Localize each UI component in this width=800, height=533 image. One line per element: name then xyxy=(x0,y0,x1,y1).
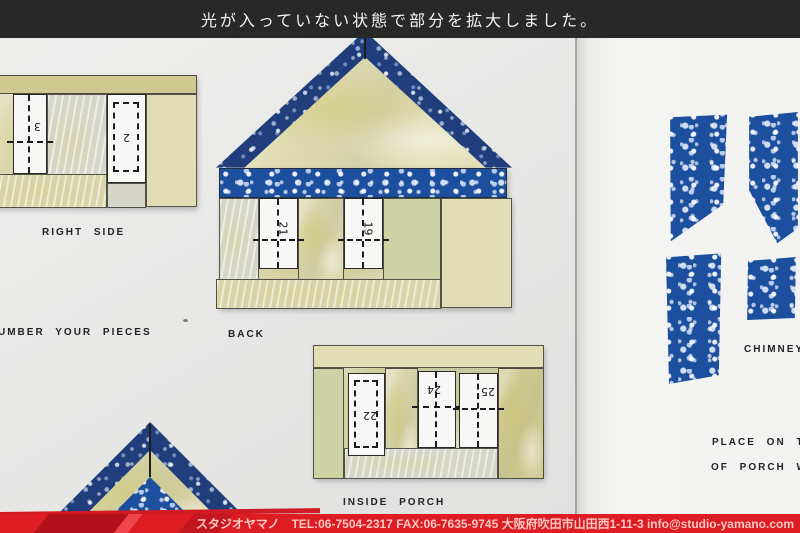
glass-piece xyxy=(498,368,544,479)
piece-number: 24 xyxy=(427,384,441,395)
chimney-label: CHIMNEY xyxy=(744,344,800,355)
pattern-window: 19 xyxy=(344,198,383,269)
glass-piece xyxy=(313,345,544,368)
dashed-line xyxy=(453,408,504,410)
right-side-glass-assembly: 3 2 xyxy=(0,75,196,207)
glass-piece xyxy=(0,75,197,94)
pattern-window: 3 xyxy=(13,94,47,174)
piece-number: 3 xyxy=(34,121,41,132)
place-on-top-label-line2: OF PORCH W xyxy=(711,462,800,473)
top-caption-banner: 光が入っていない状態で部分を拡大しました。 xyxy=(0,0,800,38)
dashed-line xyxy=(338,239,389,241)
pattern-window: 21 xyxy=(259,198,298,269)
pattern-window: 2 xyxy=(107,94,146,183)
page-fold-edge xyxy=(575,0,577,533)
back-eave-blue-band xyxy=(219,168,507,198)
glass-piece xyxy=(107,183,146,208)
piece-number: 25 xyxy=(481,386,495,397)
inside-porch-label: INSIDE PORCH xyxy=(343,497,445,508)
pattern-door: 22 xyxy=(348,373,385,456)
inside-porch-assembly: 22 24 25 xyxy=(313,345,543,478)
piece-number: 22 xyxy=(363,410,377,421)
paper-speck xyxy=(183,319,188,322)
chimney-glass-piece xyxy=(663,252,723,386)
right-side-label: RIGHT SIDE xyxy=(42,227,125,238)
piece-number: 21 xyxy=(278,222,289,236)
dashed-line xyxy=(477,374,479,447)
dashed-line xyxy=(7,141,53,143)
studio-info-banner: スタジオヤマノ TEL:06-7504-2317 FAX:06-7635-974… xyxy=(0,514,800,533)
glass-piece xyxy=(383,198,441,282)
peak-seam xyxy=(149,424,151,477)
dashed-line xyxy=(253,239,304,241)
back-wall-assembly: 21 19 xyxy=(219,198,511,308)
pattern-window: 24 xyxy=(418,371,456,448)
back-label: BACK xyxy=(228,329,265,340)
studio-contact-text: スタジオヤマノ TEL:06-7504-2317 FAX:06-7635-974… xyxy=(196,515,794,532)
glass-piece xyxy=(0,174,107,208)
piece-number: 2 xyxy=(123,132,130,143)
glass-piece xyxy=(313,368,344,479)
place-on-top-label-line1: PLACE ON TO xyxy=(712,437,800,448)
piece-number: 19 xyxy=(363,222,374,236)
photo-stage: 3 2 RIGHT SIDE 21 xyxy=(0,0,800,533)
top-caption-text: 光が入っていない状態で部分を拡大しました。 xyxy=(201,7,599,31)
glass-piece xyxy=(146,94,197,207)
glass-piece xyxy=(441,198,512,308)
chimney-glass-piece xyxy=(745,255,798,322)
glass-piece xyxy=(216,279,441,309)
dashed-line xyxy=(28,95,30,173)
pattern-window: 25 xyxy=(459,373,498,448)
number-your-pieces-label: UMBER YOUR PIECES xyxy=(0,327,152,338)
